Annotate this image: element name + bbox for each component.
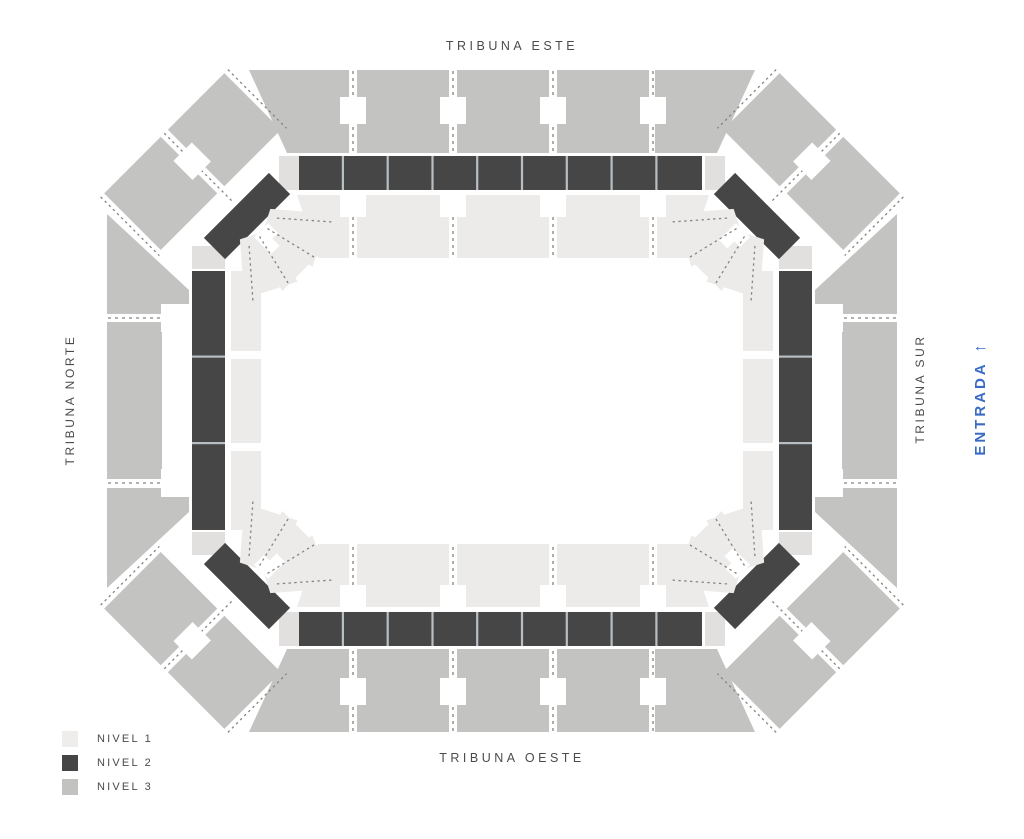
nivel1-swatch	[62, 731, 78, 747]
seating-map-page: TRIBUNA ESTE TRIBUNA OESTE TRIBUNA NORTE…	[0, 0, 1024, 839]
legend-item-nivel2: NIVEL 2	[62, 755, 153, 771]
entrance-text: ENTRADA	[972, 361, 989, 455]
legend: NIVEL 1 NIVEL 2 NIVEL 3	[62, 731, 153, 803]
nivel3-swatch	[62, 779, 78, 795]
norte-stands[interactable]	[107, 214, 261, 588]
legend-label: NIVEL 3	[97, 781, 153, 793]
stand-label-oeste: TRIBUNA OESTE	[0, 751, 1024, 765]
sur-stands[interactable]	[743, 214, 897, 588]
legend-item-nivel3: NIVEL 3	[62, 779, 153, 795]
stand-label-norte: TRIBUNA NORTE	[63, 335, 77, 466]
nivel2-swatch	[62, 755, 78, 771]
entrance-arrow-icon: ↑	[972, 344, 989, 352]
legend-item-nivel1: NIVEL 1	[62, 731, 153, 747]
stand-label-este: TRIBUNA ESTE	[0, 39, 1024, 53]
legend-label: NIVEL 2	[97, 757, 153, 769]
oeste-stands[interactable]	[249, 544, 755, 732]
stadium-map	[0, 0, 1024, 839]
stand-label-sur: TRIBUNA SUR	[913, 334, 927, 443]
este-stands[interactable]	[249, 70, 755, 258]
legend-label: NIVEL 1	[97, 733, 153, 745]
entrance-label: ENTRADA↑	[972, 344, 990, 455]
